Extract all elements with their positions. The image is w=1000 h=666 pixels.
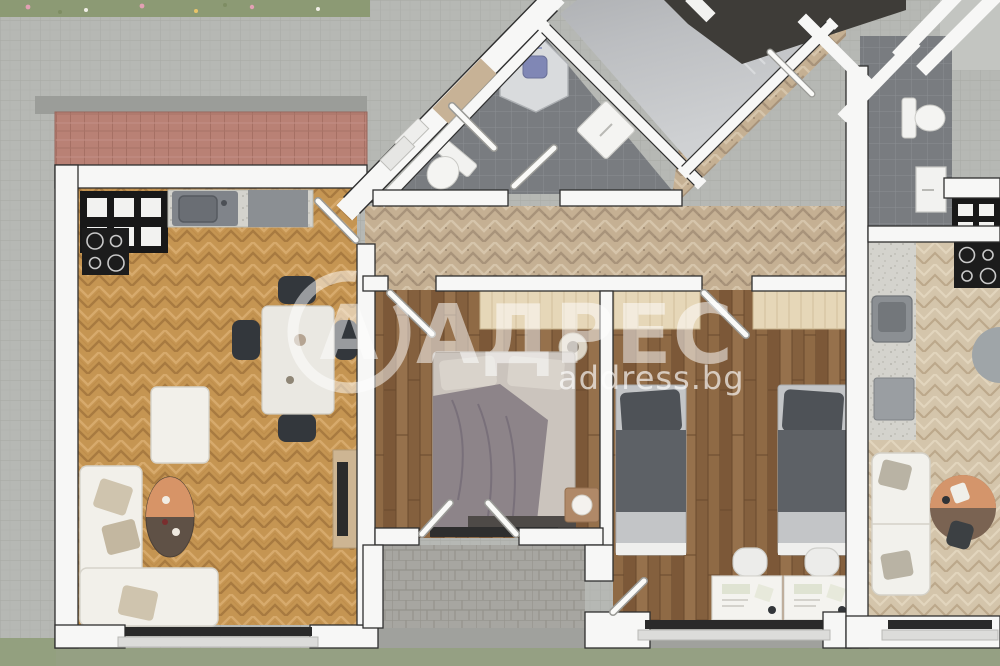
wall-bottom-left [55, 625, 125, 648]
living-window [125, 627, 312, 636]
cooktop [82, 228, 129, 275]
sofa-chaise [151, 387, 209, 463]
floor-plan-canvas: А АДРЕС address.bg [0, 0, 1000, 666]
canopy-roof-tiles [55, 112, 367, 165]
grass-patch-left [0, 638, 56, 666]
neighbor-cooktop [954, 242, 1000, 288]
tv [337, 462, 348, 536]
watermark-subtitle: address.bg [558, 359, 745, 397]
pillow [782, 389, 845, 435]
desk-chair-left [733, 548, 767, 576]
nightstand-lamp [565, 488, 599, 522]
living-window-sill [118, 637, 318, 647]
wall-top-living [55, 165, 367, 188]
terrace-wall-right-a [585, 545, 613, 581]
grass-strip-top [0, 0, 370, 17]
footboard [616, 543, 686, 555]
kids-window-sill [638, 630, 830, 640]
neighbor-sofa [872, 453, 930, 595]
kitchen-sink [179, 196, 217, 222]
grass-strip-bottom [0, 648, 1000, 666]
tv-console [333, 450, 357, 548]
dining-chair [278, 414, 316, 442]
duvet [616, 430, 686, 512]
desk-left [712, 576, 782, 620]
kids-window [645, 620, 823, 629]
neighbor-window-sill [882, 630, 998, 640]
canopy-shadow [35, 96, 367, 114]
bathroom-wall-bottom-a [373, 190, 508, 206]
neighbor-appliance [874, 378, 914, 420]
coffee-table [146, 477, 194, 557]
floor-plan-screenshot: А АДРЕС address.bg [0, 0, 1000, 666]
single-bed-left [616, 385, 686, 555]
wall-left [55, 165, 78, 648]
dining-chair [232, 320, 260, 360]
terrace-floor [383, 545, 585, 628]
bathroom-wall-bottom-b [560, 190, 682, 206]
wardrobe-right [753, 291, 846, 329]
terrace-wall-left [363, 545, 383, 628]
faucet [221, 200, 227, 206]
wall-master-bottom-b [519, 528, 603, 545]
wall-master-bottom-a [375, 528, 419, 545]
kitchen-appliance [248, 190, 308, 227]
neighbor-wall-window [944, 178, 1000, 198]
desk-chair-right [805, 548, 839, 576]
single-bed-right [778, 385, 848, 555]
party-wall [846, 66, 868, 648]
wall-bedrooms-top-c [752, 276, 848, 291]
duvet [778, 430, 848, 512]
neighbor-wall-mid [868, 226, 1000, 242]
watermark-logo-letter: А [320, 288, 379, 377]
neighbor-window [888, 620, 992, 629]
